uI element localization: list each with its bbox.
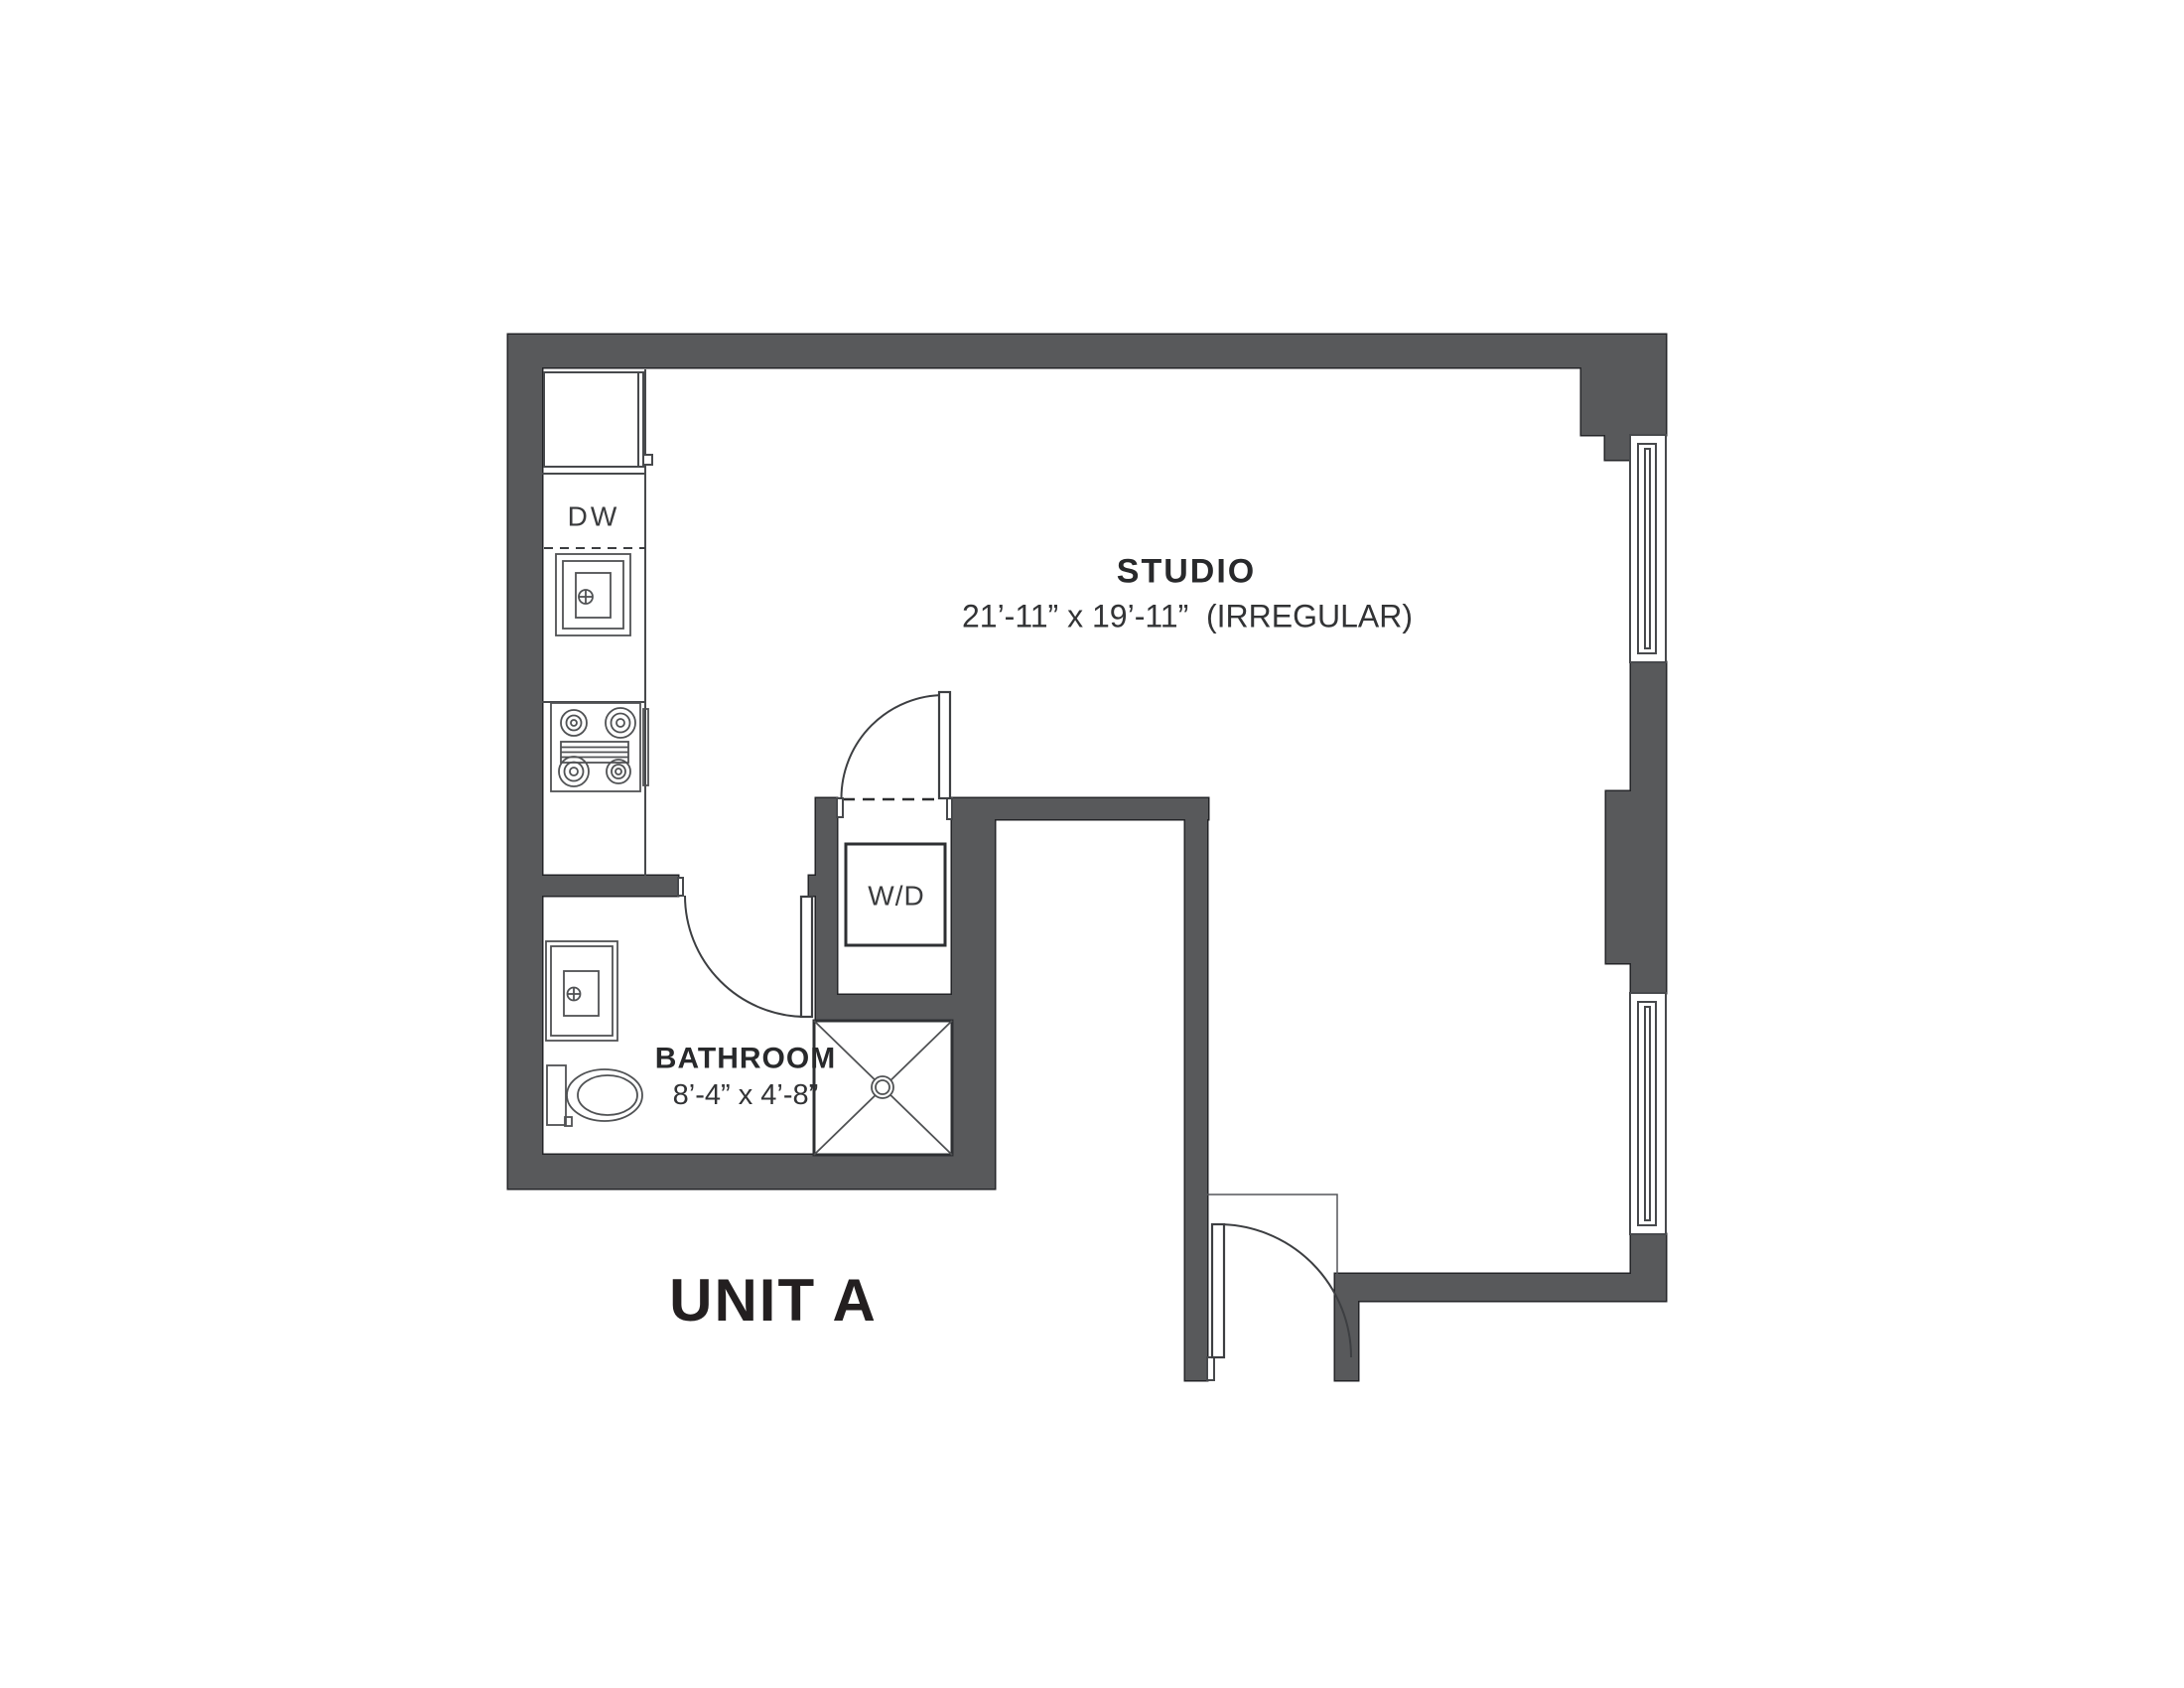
unit-title: UNIT A: [669, 1268, 878, 1334]
floor-plan-drawing: [0, 0, 2184, 1688]
walls: [508, 335, 1666, 1380]
bathroom-dimensions: 8’-4” x 4’-8”: [673, 1080, 819, 1112]
bathroom-door-icon: [678, 878, 812, 1017]
washer-dryer-label: W/D: [868, 882, 924, 913]
refrigerator-icon: [544, 372, 652, 467]
studio-label: STUDIO: [1117, 553, 1256, 590]
window-upper-icon: [1630, 435, 1666, 662]
studio-dimensions: 21’-11” x 19’-11” (IRREGULAR): [962, 599, 1413, 633]
kitchen-sink-icon: [556, 554, 630, 635]
stove-icon: [551, 703, 648, 791]
shower-icon: [814, 1021, 952, 1155]
vanity-sink-icon: [546, 941, 617, 1041]
closet-door-icon: [837, 692, 952, 819]
entry-door-icon: [1207, 1224, 1351, 1380]
floor-plan: STUDIO 21’-11” x 19’-11” (IRREGULAR) BAT…: [0, 0, 2184, 1688]
window-lower-icon: [1630, 993, 1666, 1234]
toilet-icon: [547, 1065, 642, 1126]
dishwasher-label: DW: [568, 502, 620, 533]
entry-alcove: [1207, 1195, 1337, 1274]
bathroom-label: BATHROOM: [655, 1043, 836, 1075]
